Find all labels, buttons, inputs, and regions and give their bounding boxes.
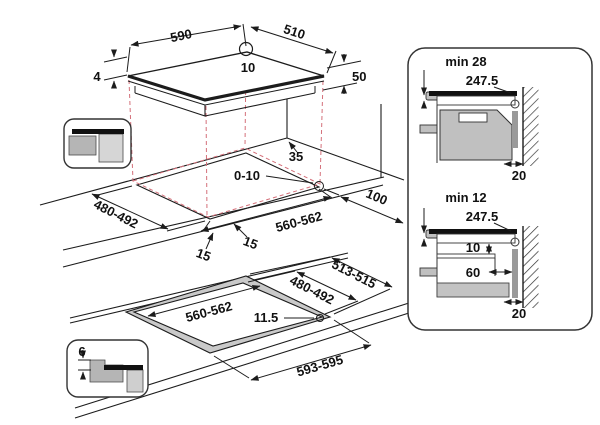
dim-15b-label: 15	[241, 233, 260, 252]
worktop-dimension-labels: 35 0-10 480-492 15 15 560-562 100	[91, 149, 389, 264]
dim-560-label: 560-562	[274, 208, 324, 235]
hob-glass-section-top	[429, 91, 517, 96]
installation-diagram: 590 510 10 4 50 35 0-10 480-492 15 15 56…	[0, 0, 600, 425]
dim-480-label: 480-492	[91, 196, 140, 231]
rebate-inset: 6	[67, 340, 148, 397]
hob-body-section-top	[437, 96, 515, 105]
hob-glass-top	[128, 52, 324, 100]
dim-247-bottom-label: 247.5	[466, 209, 499, 224]
dim-20-top-label: 20	[512, 168, 526, 183]
dim-10-label: 10	[241, 60, 255, 75]
dim-593-label: 593-595	[295, 352, 345, 380]
worktop-back-right-edge	[287, 138, 404, 180]
dim-513-label: 513-515	[329, 256, 378, 291]
dim-60-label: 60	[466, 265, 480, 280]
dim-50-label: 50	[352, 69, 366, 84]
oven-inset	[64, 119, 131, 168]
dim-510-label: 510	[282, 21, 307, 42]
hob-view	[128, 43, 324, 117]
bracket-tab-bottom	[420, 268, 437, 276]
dim-20-bottom-label: 20	[512, 306, 526, 321]
worktop-front-bottom-edge	[63, 185, 383, 267]
bracket-tab-top	[420, 125, 437, 133]
oven-vent	[459, 113, 487, 122]
min-12-label: min 12	[445, 190, 486, 205]
dim-0-10-label: 0-10	[234, 168, 260, 183]
flush-cutout-hole	[134, 283, 322, 346]
dim-6-label: 6	[78, 344, 85, 359]
hob-glass-section-bottom	[429, 229, 517, 234]
dim-4-label: 4	[93, 69, 101, 84]
wall-hatching-top	[524, 87, 539, 166]
dim-247-top-label: 247.5	[466, 73, 499, 88]
spacer-bar-top	[512, 111, 518, 148]
oven-inset-hob	[72, 129, 124, 134]
wall-hatching-bottom	[524, 226, 539, 308]
oven-inset-cabinet	[99, 134, 123, 162]
dim-10-shelf-label: 10	[466, 240, 480, 255]
oven-inset-oven	[69, 136, 96, 155]
dim-100-label: 100	[364, 186, 390, 208]
rebate-inset-glass	[104, 365, 143, 370]
side-panel: min 28 247.5 20	[408, 48, 592, 330]
dim-35-label: 35	[289, 149, 303, 164]
spacer-bar-bottom	[512, 249, 518, 298]
base-shelf	[437, 283, 509, 297]
dim-11-5-label: 11.5	[254, 310, 279, 325]
dim-590-label: 590	[169, 26, 193, 45]
rebate-inset-hob-body	[127, 370, 143, 392]
dim-15a-label: 15	[194, 245, 213, 264]
dim-arrow-15a	[206, 233, 213, 249]
min-28-label: min 28	[445, 54, 486, 69]
diagram-canvas: 590 510 10 4 50 35 0-10 480-492 15 15 56…	[0, 0, 600, 425]
